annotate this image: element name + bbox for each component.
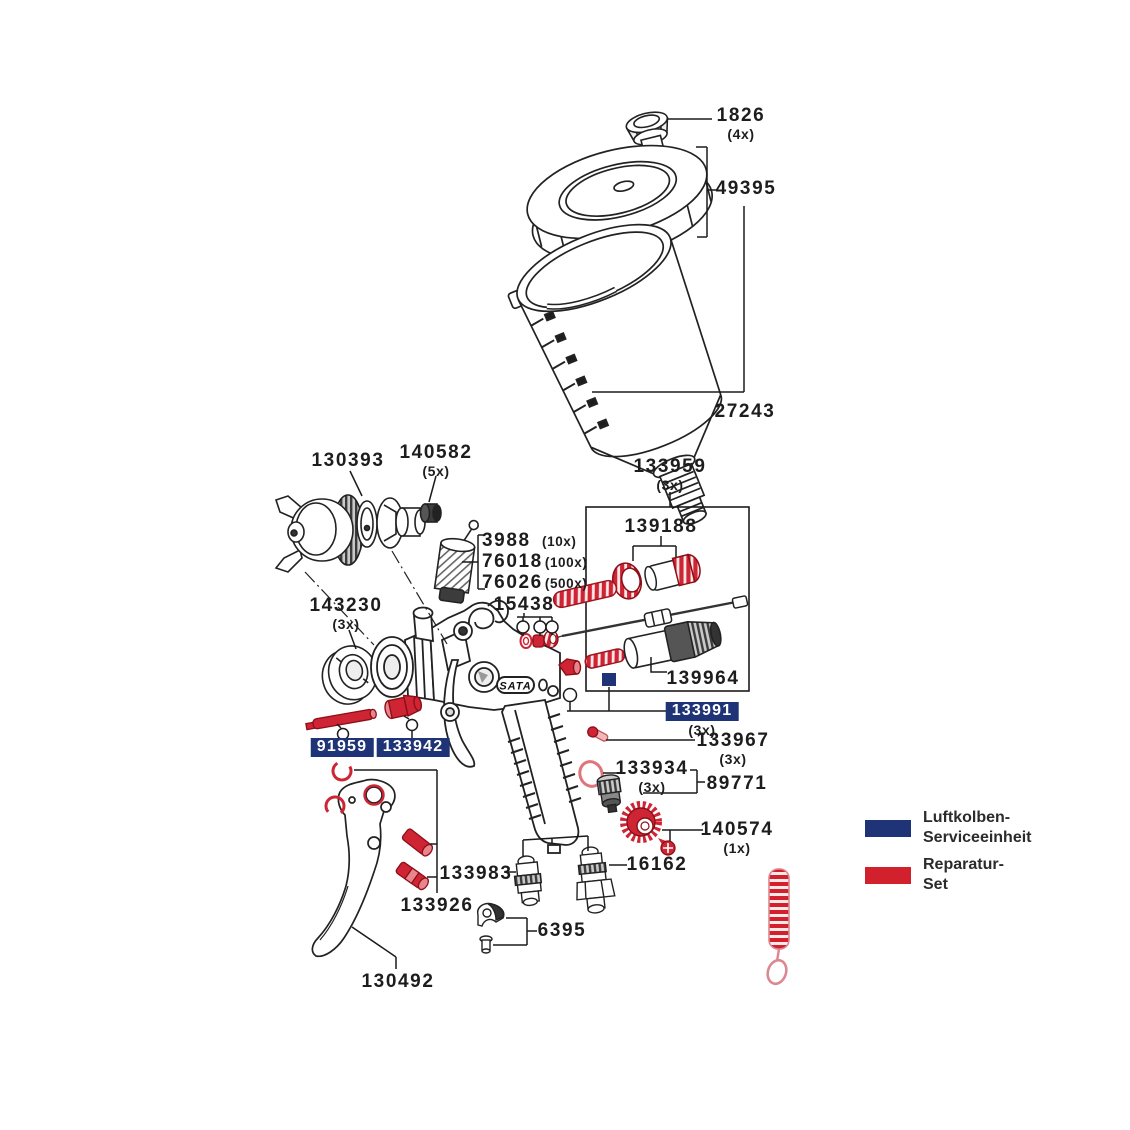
- part-label-133942: 133942: [377, 738, 450, 757]
- legend-label-reparatur-set: Reparatur- Set: [923, 855, 1004, 895]
- part-label-76026: 76026 (500x): [482, 573, 587, 592]
- part-label-130393: 130393: [311, 451, 384, 470]
- legend-swatch-red: [865, 867, 911, 884]
- inlet-nipple: [572, 845, 617, 915]
- part-label-3988: 3988 (10x): [482, 531, 577, 550]
- legend-label-luftkolben-serviceeinheit: Luftkolben- Serviceeinheit: [923, 808, 1032, 848]
- legend-swatch-blue: [865, 820, 911, 837]
- part-label-140582: 140582 (5x): [399, 443, 472, 479]
- service-unit-marker: [602, 673, 616, 686]
- part-label-143230: 143230 (3x): [309, 596, 382, 632]
- set-screw: [586, 725, 609, 744]
- piston-spring-small: [584, 648, 626, 670]
- part-label-140574: 140574 (1x): [700, 820, 773, 856]
- part-label-49395: 49395: [716, 179, 777, 198]
- part-label-139188: 139188: [624, 517, 697, 536]
- part-label-91959: 91959: [311, 738, 374, 757]
- part-label-133967: 133967 (3x): [696, 731, 769, 767]
- part-label-16162: 16162: [627, 855, 688, 874]
- circlip-1: [330, 759, 355, 784]
- part-label-76018: 76018 (100x): [482, 552, 587, 571]
- legend-item-luftkolben-serviceeinheit: Luftkolben- Serviceeinheit: [865, 808, 1032, 848]
- brand-plate: SATA: [499, 681, 531, 693]
- cleaning-brush: [765, 869, 790, 986]
- part-label-89771: 89771: [707, 774, 768, 793]
- legend: Luftkolben- Serviceeinheit Reparatur- Se…: [865, 808, 1032, 895]
- part-label-6395: 6395: [538, 921, 587, 940]
- fluid-tip: [642, 553, 702, 594]
- spray-gun-parts-diagram: SATA: [0, 0, 1130, 1130]
- part-label-27243: 27243: [715, 402, 776, 421]
- air-piston: [621, 616, 724, 671]
- legend-item-reparatur-set: Reparatur- Set: [865, 855, 1032, 895]
- trigger-pin-1: [401, 828, 434, 858]
- part-label-133983: 133983: [439, 864, 512, 883]
- air-cap-assembly: [276, 495, 441, 572]
- part-label-133959: 133959 (3x): [633, 457, 706, 493]
- air-connector: [513, 855, 544, 907]
- part-label-130492: 130492: [361, 972, 434, 991]
- part-label-1826: 1826 (4x): [717, 106, 766, 142]
- trigger-pin-2: [395, 861, 430, 891]
- paint-cup: [498, 207, 772, 556]
- paint-filter: [433, 516, 479, 603]
- part-label-15438: 15438: [494, 595, 555, 614]
- piston-nut: [559, 659, 581, 675]
- part-label-133926: 133926: [400, 896, 473, 915]
- part-label-133934: 133934 (3x): [615, 759, 688, 795]
- part-label-139964: 139964: [666, 669, 739, 688]
- nozzle-ring: [609, 560, 645, 602]
